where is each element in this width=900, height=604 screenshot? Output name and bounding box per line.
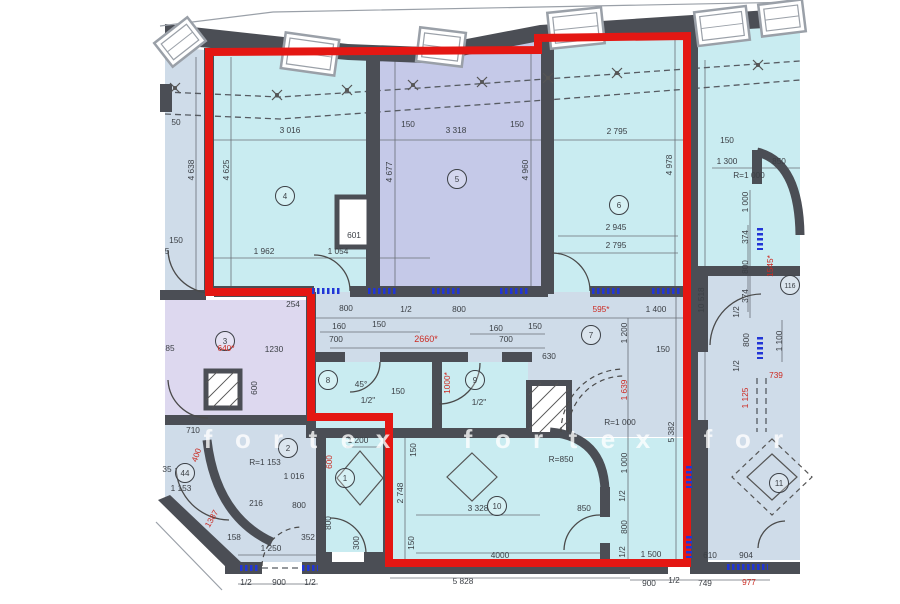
room-badge-6: 6 <box>610 196 629 215</box>
dimension-label: 710 <box>186 425 200 435</box>
dimension-label: 1 125 <box>740 387 750 408</box>
dimension-label: 1 200 <box>619 322 629 343</box>
watermark-letter: r <box>273 424 283 454</box>
dimension-label: 4 960 <box>520 159 530 180</box>
watermark-letter: o <box>495 424 511 454</box>
dimension-label: 600 <box>324 455 334 469</box>
dimension-label: 1/2" <box>361 395 376 405</box>
dimension-label: 1 962 <box>254 246 275 256</box>
room-badge-number: 116 <box>784 283 795 290</box>
watermark-letter: o <box>235 424 251 454</box>
wall-segment <box>690 562 800 574</box>
dimension-label: 150 <box>656 344 670 354</box>
wall-segment <box>160 84 172 112</box>
room-badge-1: 1 <box>336 469 355 488</box>
dimension-label: 150 <box>406 536 416 550</box>
dimension-label: 1 153 <box>171 483 192 493</box>
dimension-label: 850 <box>577 503 591 513</box>
dimension-label: 900 <box>642 578 656 588</box>
room-badge-number: 1 <box>343 474 348 483</box>
dimension-label: 800 <box>740 260 750 274</box>
dimension-label: 800 <box>323 516 333 530</box>
dimension-label: 150 <box>169 235 183 245</box>
window-symbol <box>758 0 806 37</box>
dimension-label: 4000 <box>491 550 510 560</box>
dimension-label: 10 518 <box>696 287 706 313</box>
dimension-label: 640* <box>217 343 235 353</box>
wall-segment <box>316 428 326 562</box>
room-fill-room-10-hall <box>393 438 684 560</box>
dimension-label: 50 <box>171 117 181 127</box>
watermark-letter: f <box>704 424 713 454</box>
dimension-label: 749 <box>698 578 712 588</box>
floor-plan-drawing: 123456789101144116503 0161503 3181502 79… <box>0 0 900 604</box>
dimension-label: 1/2 <box>400 304 412 314</box>
dimension-label: 374 <box>740 230 750 244</box>
watermark-letter: r <box>533 424 543 454</box>
room-badge-11: 11 <box>770 474 789 493</box>
dimension-label: 1 250 <box>261 543 282 553</box>
room-fill-neighbor-right-bottom <box>698 268 800 560</box>
room-badge-number: 8 <box>326 376 331 385</box>
floor-plan-screenshot: 123456789101144116503 0161503 3181502 79… <box>0 0 900 604</box>
dimension-label: 630 <box>542 351 556 361</box>
window-symbol <box>694 6 750 46</box>
dimension-label: 3 318 <box>446 125 467 135</box>
room-badge-number: 6 <box>617 201 622 210</box>
dimension-label: 1545* <box>765 254 775 276</box>
dimension-label: 4 625 <box>221 159 231 180</box>
dimension-label: 2 748 <box>395 482 405 503</box>
wall-segment <box>380 352 468 362</box>
dimension-label: 5 828 <box>453 576 474 586</box>
dimension-label: 150 <box>720 135 734 145</box>
dimension-label: 600 <box>249 381 259 395</box>
watermark-letter: o <box>735 424 751 454</box>
dimension-label: 160 <box>332 321 346 331</box>
dimension-label: 35 <box>162 464 172 474</box>
watermark-letter: e <box>341 424 355 454</box>
dimension-label: 158 <box>227 532 241 542</box>
wall-segment <box>600 487 610 517</box>
wall-segment <box>366 46 380 294</box>
dimension-label: 160 <box>489 323 503 333</box>
dimension-label: 1/2 <box>617 546 627 558</box>
dimension-label: 800 <box>452 304 466 314</box>
dimension-label: 800 <box>292 500 306 510</box>
dimension-label: 216 <box>249 498 263 508</box>
room-badge-44: 44 <box>176 464 195 483</box>
room-badge-number: 11 <box>775 479 784 488</box>
dimension-label: 1230 <box>265 344 284 354</box>
vent-hub <box>275 93 279 97</box>
dimension-label: 1 016 <box>284 471 305 481</box>
room-badge-number: 10 <box>493 502 502 511</box>
dimension-label: 150 <box>408 443 418 457</box>
dimension-label: 150 <box>401 119 415 129</box>
room-badge-number: 9 <box>473 376 478 385</box>
room-badge-116: 116 <box>781 276 800 295</box>
room-badge-8: 8 <box>319 371 338 390</box>
wall-segment <box>502 352 532 362</box>
wall-segment <box>316 552 332 562</box>
watermark-letter: x <box>636 424 651 454</box>
room-badge-number: 7 <box>589 331 594 340</box>
dimension-label: 85 <box>165 343 175 353</box>
dimension-label: 3 328 <box>468 503 489 513</box>
dimension-label: 1/2 <box>240 577 252 587</box>
dimension-label: 2 945 <box>606 222 627 232</box>
room-fill-room-5 <box>380 42 541 292</box>
dimension-label: 4 978 <box>664 154 674 175</box>
dimension-label: 850 <box>772 156 786 166</box>
dimension-label: 1 000 <box>619 452 629 473</box>
room-badge-10: 10 <box>488 497 507 516</box>
dimension-label: 1/2 <box>617 490 627 502</box>
dimension-label: 1/2 <box>668 575 680 585</box>
dimension-label: 977 <box>742 577 756 587</box>
room-badge-4: 4 <box>276 187 295 206</box>
room-badge-number: 5 <box>455 175 460 184</box>
dimension-label: 352 <box>301 532 315 542</box>
dimension-label: 5 382 <box>666 421 676 442</box>
dimension-label: 2660* <box>414 334 438 344</box>
vent-hub <box>546 76 550 80</box>
dimension-label: 800 <box>619 520 629 534</box>
room-fill-room-1 <box>326 438 383 552</box>
dimension-label: 2 795 <box>607 126 628 136</box>
dimension-label: 1/2" <box>472 397 487 407</box>
window-symbol <box>547 7 604 48</box>
dimension-label: 739 <box>769 370 783 380</box>
dimension-label: 1 400 <box>646 304 667 314</box>
dimension-label: 1000* <box>442 371 452 393</box>
dimension-label: 3 016 <box>280 125 301 135</box>
dimension-label: 1/2 <box>731 360 741 372</box>
vent-hub <box>345 88 349 92</box>
dimension-label: 374 <box>740 289 750 303</box>
room-badge-number: 44 <box>181 469 190 478</box>
dimension-label: 254 <box>286 299 300 309</box>
dimension-label: 1/2 <box>731 306 741 318</box>
dimension-label: 800 <box>339 303 353 313</box>
watermark-letter: t <box>569 424 578 454</box>
dimension-label: 1 000 <box>740 191 750 212</box>
room-badge-7: 7 <box>582 326 601 345</box>
dimension-label: 700 <box>329 334 343 344</box>
room-fill-neighbor-right-top <box>698 13 800 268</box>
dimension-label: 1 054 <box>328 246 349 256</box>
dimension-label: 2 795 <box>606 240 627 250</box>
vent-hub <box>615 71 619 75</box>
watermark-letter: t <box>309 424 318 454</box>
dimension-label: 900 <box>272 577 286 587</box>
dimension-label: 595* <box>592 304 610 314</box>
room-badge-number: 2 <box>286 444 291 453</box>
vent-hub <box>756 63 760 67</box>
wall-segment <box>432 352 442 436</box>
vent-hub <box>480 80 484 84</box>
dimension-label: 4 677 <box>384 161 394 182</box>
room-fill-room-9 <box>442 362 528 428</box>
dimension-label: 1/2 <box>304 577 316 587</box>
watermark-letter: e <box>601 424 615 454</box>
dimension-label: 1 100 <box>774 330 784 351</box>
shaft-room3 <box>206 371 240 408</box>
dimension-label: 150 <box>372 319 386 329</box>
dimension-label: 5 <box>165 246 170 256</box>
dimension-label: R=1 000 <box>733 170 765 180</box>
vent-hub <box>411 83 415 87</box>
dimension-label: 610 <box>703 550 717 560</box>
watermark-letter: f <box>204 424 213 454</box>
watermark-letter: f <box>464 424 473 454</box>
watermark-letter: r <box>773 424 783 454</box>
dimension-label: 1 500 <box>641 549 662 559</box>
room-badge-9: 9 <box>466 371 485 390</box>
dimension-label: 300 <box>351 536 361 550</box>
dimension-label: 4 638 <box>186 159 196 180</box>
dimension-label: 700 <box>499 334 513 344</box>
dimension-label: 150 <box>528 321 542 331</box>
dimension-label: R=850 <box>549 454 574 464</box>
watermark-letter: x <box>376 424 391 454</box>
vent-hub <box>173 86 177 90</box>
dimension-label: 1 639 <box>619 379 629 400</box>
dimension-label: 1 300 <box>717 156 738 166</box>
dimension-label: 150 <box>510 119 524 129</box>
dimension-label: 601 <box>347 230 361 240</box>
dimension-label: 800 <box>741 333 751 347</box>
room-badge-5: 5 <box>448 170 467 189</box>
room-badge-number: 4 <box>283 192 288 201</box>
dimension-label: 150 <box>391 386 405 396</box>
dimension-label: 45° <box>355 379 368 389</box>
dimension-label: 904 <box>739 550 753 560</box>
dimension-label: R=1 153 <box>249 457 281 467</box>
